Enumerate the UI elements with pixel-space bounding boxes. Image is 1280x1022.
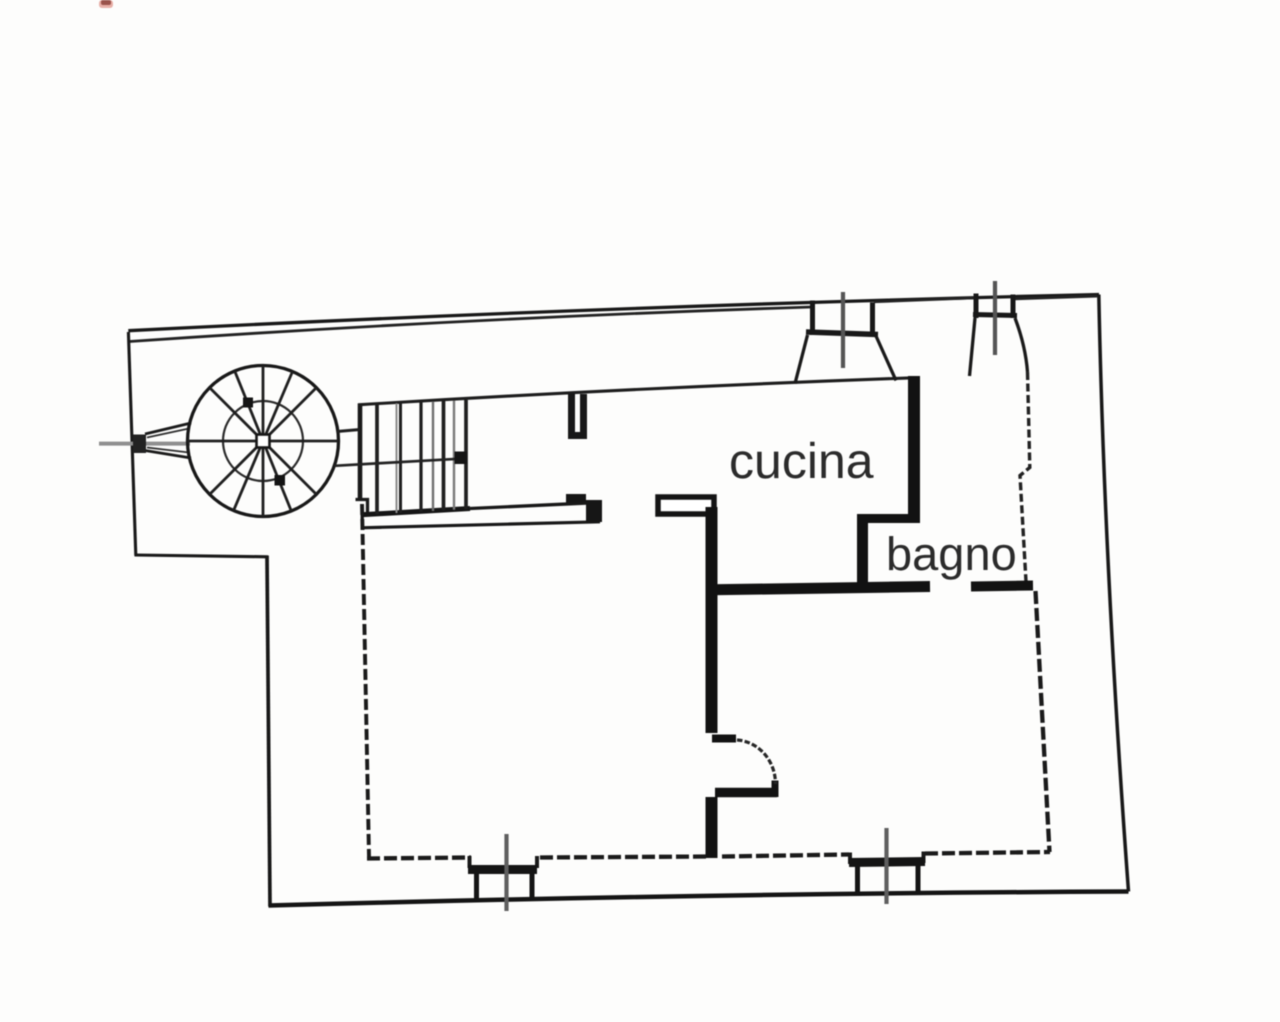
svg-text:bagno: bagno (886, 527, 1017, 580)
svg-text:cucina: cucina (729, 433, 874, 489)
